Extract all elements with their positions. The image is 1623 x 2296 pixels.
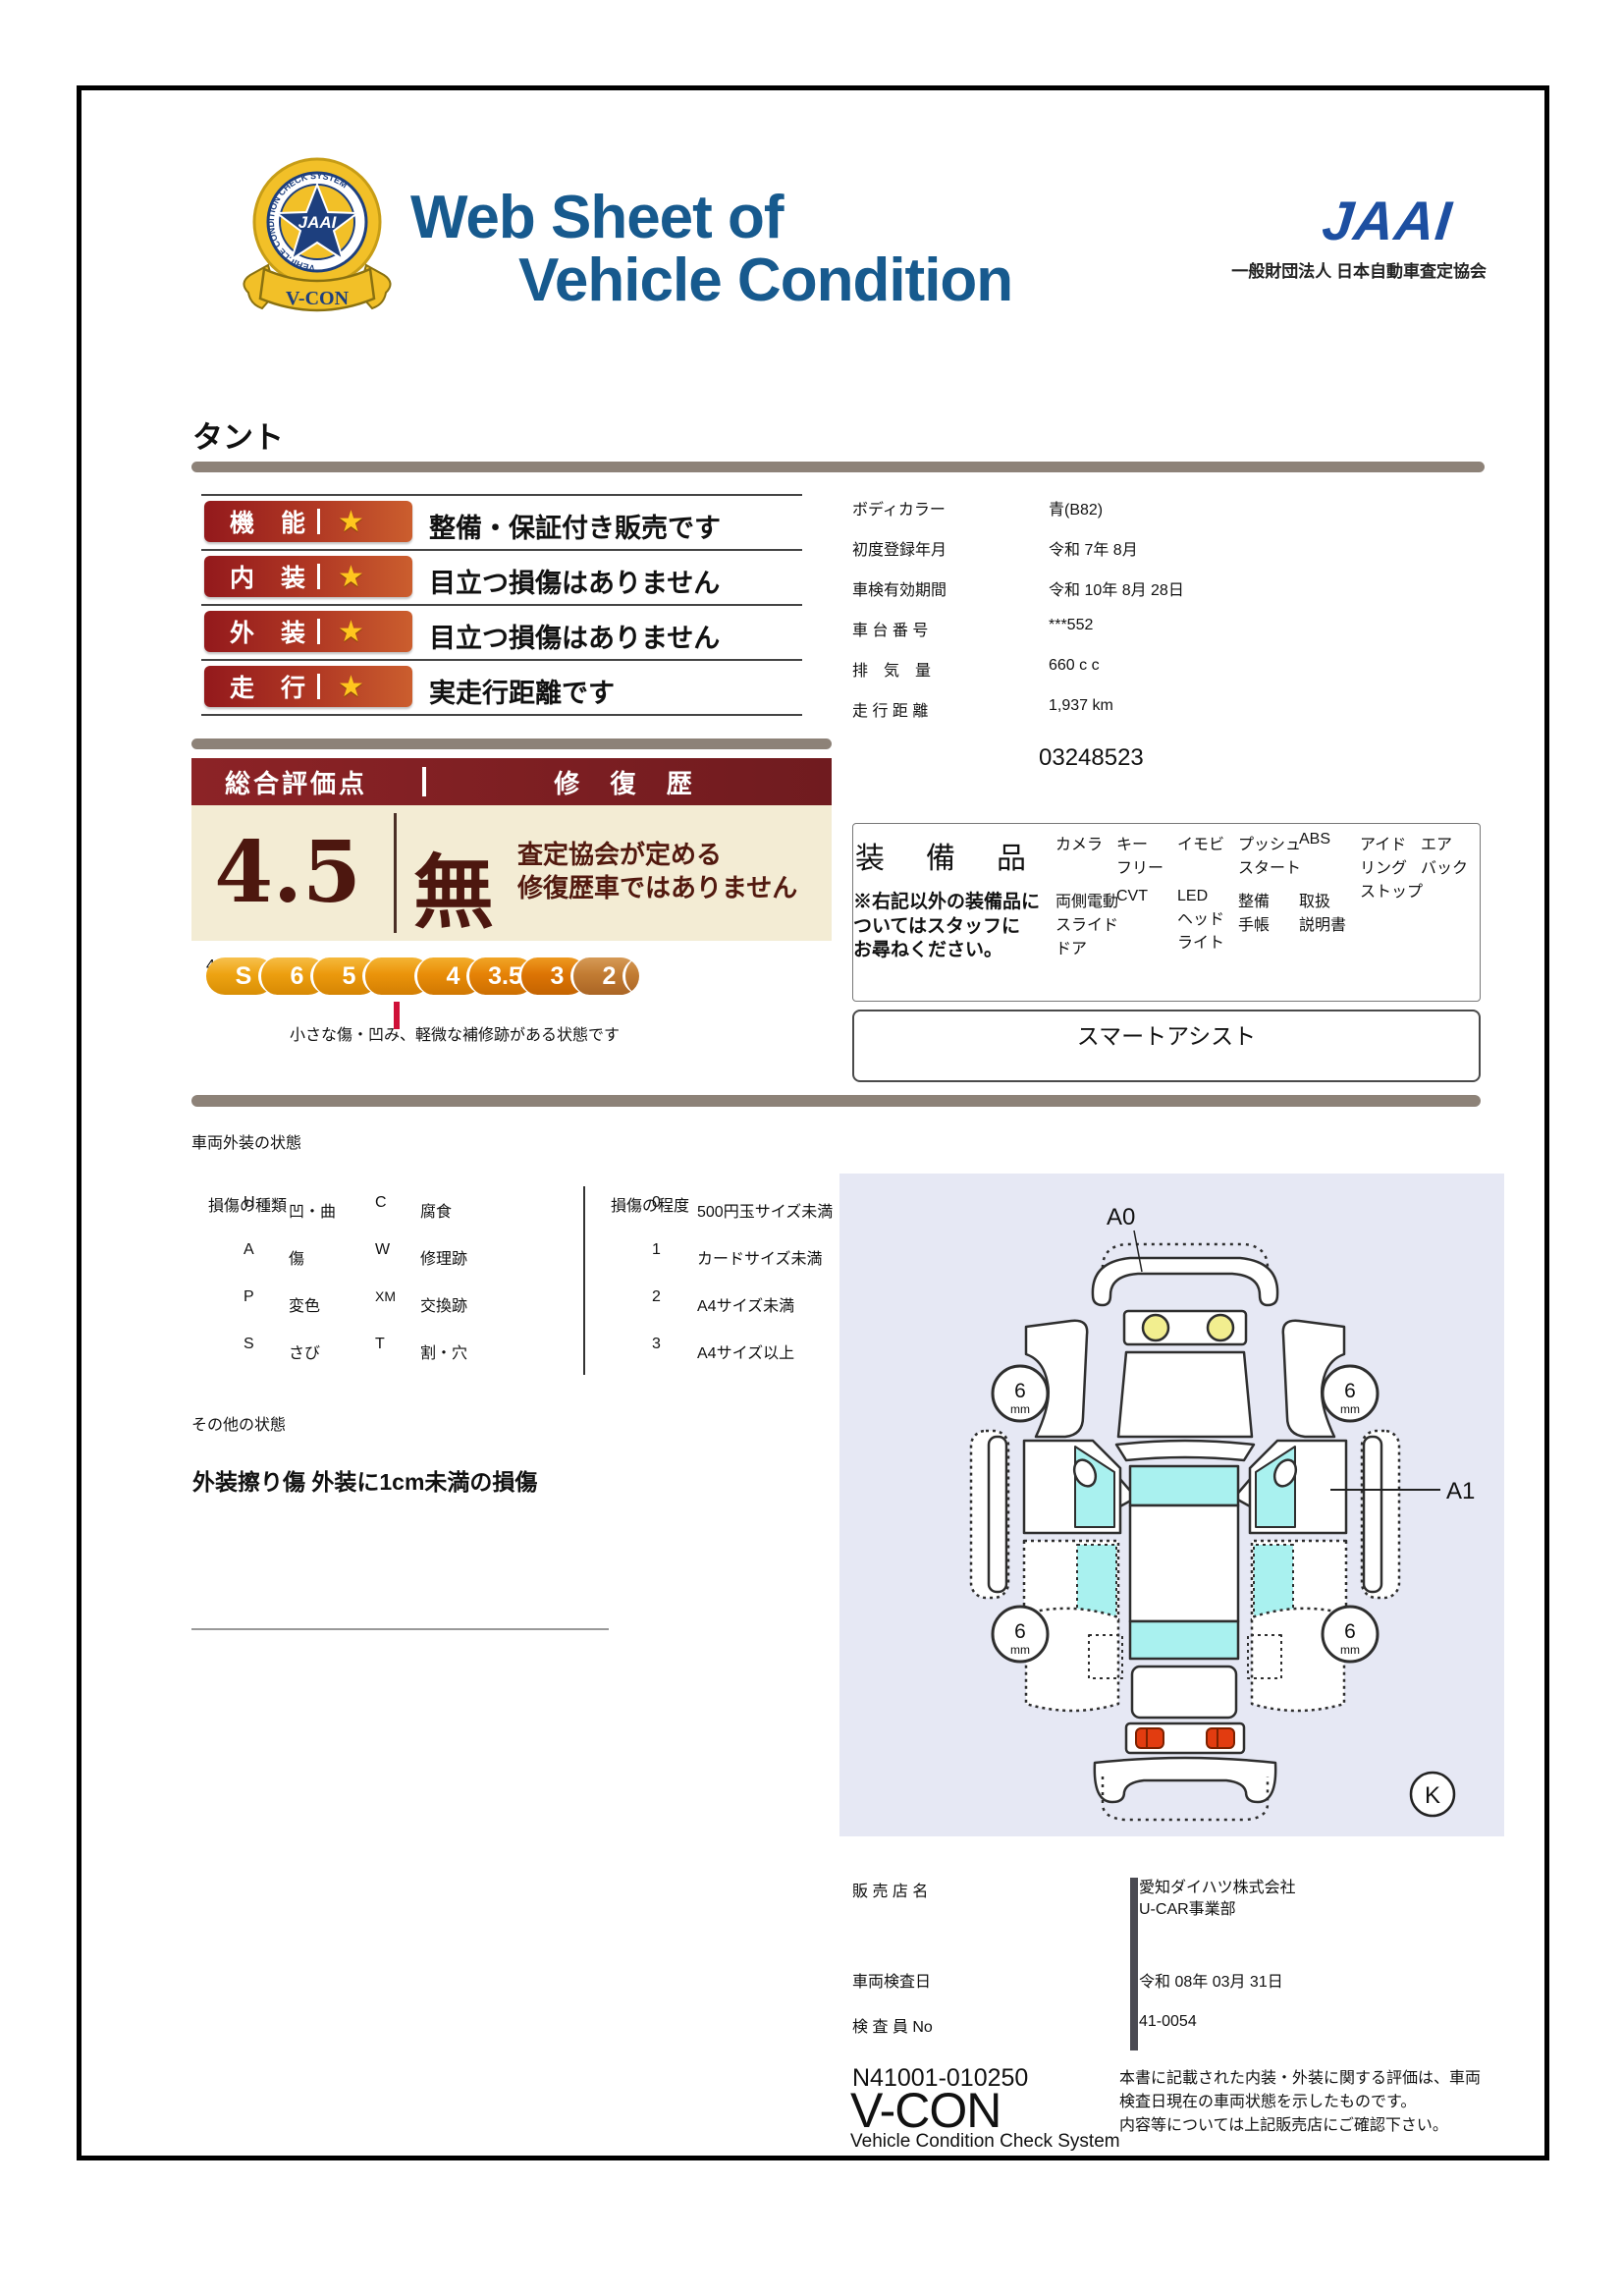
badge-divider	[317, 564, 320, 589]
rating-category: 機 能	[204, 504, 315, 539]
vehicle-name: タント	[192, 412, 284, 457]
rating-divider	[201, 604, 802, 606]
rating-badge-mileage: 走 行 ★	[204, 666, 412, 707]
star-icon: ★	[338, 560, 364, 594]
svg-text:mm: mm	[1340, 1402, 1360, 1416]
dealer-table-divider	[1130, 1878, 1138, 2050]
section-tab-other: その他の状態	[191, 1411, 449, 1435]
diagram-label-a0: A0	[1107, 1204, 1135, 1230]
overall-score-box: 総合評価点 修 復 歴 4.5 無 査定協会が定める 修復歴車ではありません	[191, 758, 832, 941]
tread-rear-left: 6	[1014, 1620, 1026, 1643]
detail-value: 1,937 km	[1049, 697, 1481, 733]
detail-value: 令和 7年 8月	[1049, 536, 1481, 572]
legend-divider	[583, 1186, 585, 1375]
notes-underline	[191, 1628, 609, 1630]
equipment-panel: 装 備 品 ※右記以外の装備品に ついてはスタッフに お尋ねください。 カメラ …	[852, 823, 1481, 1002]
rating-category: 内 装	[204, 559, 315, 594]
rating-comment: 目立つ損傷はありません	[429, 617, 720, 655]
damage-code-badge: A	[243, 1241, 254, 1259]
tread-rear-right: 6	[1344, 1620, 1356, 1643]
damage-code-badge: W	[375, 1241, 390, 1259]
vehicle-condition-sheet: VEHICLE CONDITION CHECK SYSTEM JAAI V-CO…	[0, 0, 1623, 2296]
body-divider	[394, 813, 397, 933]
equipment-badge: エア バック	[1421, 831, 1468, 878]
divider-bar-left	[191, 738, 832, 749]
detail-label: 排 気 量	[852, 657, 1045, 692]
rating-divider	[201, 549, 802, 551]
detail-label: 走 行 距 離	[852, 697, 1045, 733]
rating-badge-interior: 内 装 ★	[204, 556, 412, 597]
detail-label: ボディカラー	[852, 496, 1045, 531]
damage-code-label: 腐食	[420, 1198, 452, 1222]
damage-code-label: 変色	[289, 1292, 320, 1316]
svg-text:mm: mm	[1010, 1402, 1030, 1416]
marker-stem	[394, 1002, 400, 1029]
tread-front-left: 6	[1014, 1380, 1026, 1402]
disclaimer-text: 本書に記載された内装・外装に関する評価は、車両検査日現在の車両状態を示したもので…	[1119, 2064, 1483, 2151]
jaai-logo-icon: JAAI	[1292, 192, 1488, 251]
degree-badge: 3	[652, 1336, 661, 1353]
detail-value: ***552	[1049, 617, 1481, 652]
rating-comment: 目立つ損傷はありません	[429, 562, 720, 600]
dealer-label: 販 売 店 名	[852, 1878, 1131, 1962]
star-icon: ★	[338, 670, 364, 704]
page-title-line2: Vehicle Condition	[518, 246, 1012, 315]
degree-badge: 1	[652, 1241, 661, 1259]
detail-value: 青(B82)	[1049, 496, 1481, 531]
repair-history-label: 修 復 歴	[426, 764, 832, 800]
damage-code-label: 修理跡	[420, 1245, 467, 1269]
equipment-badge: 整備 手帳	[1238, 888, 1270, 935]
detail-label: 初度登録年月	[852, 536, 1045, 572]
dealer-value: 愛知ダイハツ株式会社 U-CAR事業部	[1139, 1878, 1481, 1962]
degree-badge: 0	[652, 1194, 661, 1212]
diagram-label-a1: A1	[1446, 1478, 1475, 1504]
damage-code-badge: P	[243, 1288, 254, 1306]
degree-label: A4サイズ未満	[697, 1292, 794, 1316]
svg-text:JAAI: JAAI	[298, 213, 338, 232]
svg-text:JAAI: JAAI	[1320, 192, 1456, 251]
equipment-badge: LED ヘッド ライト	[1177, 888, 1224, 953]
grade-note-callout: 小さな傷・凹み、軽微な補修跡がある状態です	[290, 1021, 763, 1059]
damage-code-badge: C	[375, 1194, 387, 1212]
vcon-emblem-icon: VEHICLE CONDITION CHECK SYSTEM JAAI V-CO…	[229, 145, 406, 352]
svg-text:mm: mm	[1340, 1643, 1360, 1657]
damage-code-badge: XM	[375, 1288, 396, 1304]
equipment-badge: プッシュ スタート	[1238, 831, 1301, 878]
degree-label: 500円玉サイズ未満	[697, 1198, 833, 1222]
overall-score-label: 総合評価点	[191, 764, 367, 800]
degree-badge: 2	[652, 1288, 661, 1306]
damage-code-label: 傷	[289, 1245, 304, 1269]
detail-label: 車検有効期間	[852, 576, 1045, 612]
equipment-badge: カメラ	[1055, 831, 1103, 854]
section-tab-exterior: 車両外装の状態	[191, 1129, 486, 1153]
damage-code-label: 割・穴	[420, 1339, 467, 1363]
car-damage-diagram: 6 mm 6 mm 6 mm 6 mm A0 A1 K	[839, 1174, 1504, 1836]
tread-front-right: 6	[1344, 1380, 1356, 1402]
rating-comment: 実走行距離です	[429, 672, 615, 710]
detail-value: 令和 10年 8月 28日	[1049, 576, 1481, 612]
equipment-badge: キー フリー	[1116, 831, 1163, 878]
badge-divider	[317, 674, 320, 699]
equipment-badge: イモビ	[1177, 831, 1224, 854]
reference-number-box: 03248523	[852, 738, 1623, 819]
dealer-label: 車両検査日	[852, 1968, 1131, 2007]
repair-history-note: 査定協会が定める 修復歴車ではありません	[517, 839, 797, 905]
page-frame	[77, 85, 1549, 2160]
rating-badge-exterior: 外 装 ★	[204, 611, 412, 652]
extra-equipment-box: スマートアシスト	[852, 1010, 1481, 1082]
page-title-line1: Web Sheet of	[410, 183, 784, 252]
svg-text:mm: mm	[1010, 1643, 1030, 1657]
dealer-value: 令和 08年 03月 31日	[1139, 1968, 1481, 2007]
grade-segment: R	[675, 957, 743, 995]
equipment-badge: ABS	[1299, 831, 1330, 848]
badge-divider	[317, 619, 320, 644]
diagram-key-letter: K	[1425, 1782, 1440, 1809]
rating-category: 走 行	[204, 669, 315, 704]
damage-code-label: 交換跡	[420, 1292, 467, 1316]
equipment-badge: アイド リング ストップ	[1360, 831, 1423, 902]
vcon-subtitle: Vehicle Condition Check System	[850, 2131, 1120, 2153]
equipment-note: ※右記以外の装備品に ついてはスタッフに お尋ねください。	[853, 891, 1046, 963]
damage-code-label: さび	[289, 1339, 320, 1363]
rating-divider	[201, 659, 802, 661]
repair-history-value: 無	[413, 827, 494, 944]
badge-divider	[317, 509, 320, 534]
equipment-title: 装 備 品	[853, 824, 1046, 891]
degree-label: A4サイズ以上	[697, 1339, 794, 1363]
svg-text:V-CON: V-CON	[286, 288, 350, 309]
rating-category: 外 装	[204, 614, 315, 649]
rating-divider	[201, 714, 802, 716]
star-icon: ★	[338, 615, 364, 649]
damage-code-badge: T	[375, 1336, 385, 1353]
detail-value: 660 c c	[1049, 657, 1481, 692]
divider-bar-top	[191, 462, 1485, 472]
rating-badge-function: 機 能 ★	[204, 501, 412, 542]
rating-divider	[201, 494, 802, 496]
rating-comment: 整備・保証付き販売です	[429, 507, 721, 545]
grade-scale: S 6 5 4 3.5 3 2 1 R 4.5	[206, 957, 756, 995]
star-icon: ★	[338, 505, 364, 539]
overall-score-value: 4.5	[191, 823, 384, 922]
detail-label: 車 台 番 号	[852, 617, 1045, 652]
damage-code-label: 凹・曲	[289, 1198, 336, 1222]
overall-score-header: 総合評価点 修 復 歴	[191, 758, 832, 805]
damage-code-badge: S	[243, 1336, 254, 1353]
other-state-note: 外装擦り傷 外装に1cm未満の損傷	[192, 1463, 537, 1497]
degree-label: カードサイズ未満	[697, 1245, 823, 1269]
dealer-label: 検 査 員 No	[852, 2013, 1131, 2050]
equipment-badge: 取扱 説明書	[1299, 888, 1346, 935]
overall-score-body: 4.5 無 査定協会が定める 修復歴車ではありません	[191, 805, 832, 941]
divider-bar-mid	[191, 1095, 1481, 1107]
jaai-subtitle: 一般財団法人 日本自動車査定協会	[1219, 257, 1487, 282]
equipment-badge: 両側電動 スライド ドア	[1055, 888, 1118, 958]
damage-degree-label: 損傷の程度	[611, 1192, 689, 1365]
damage-code-badge: U	[243, 1194, 255, 1212]
equipment-badge: CVT	[1116, 888, 1148, 905]
dealer-value: 41-0054	[1139, 2013, 1481, 2050]
